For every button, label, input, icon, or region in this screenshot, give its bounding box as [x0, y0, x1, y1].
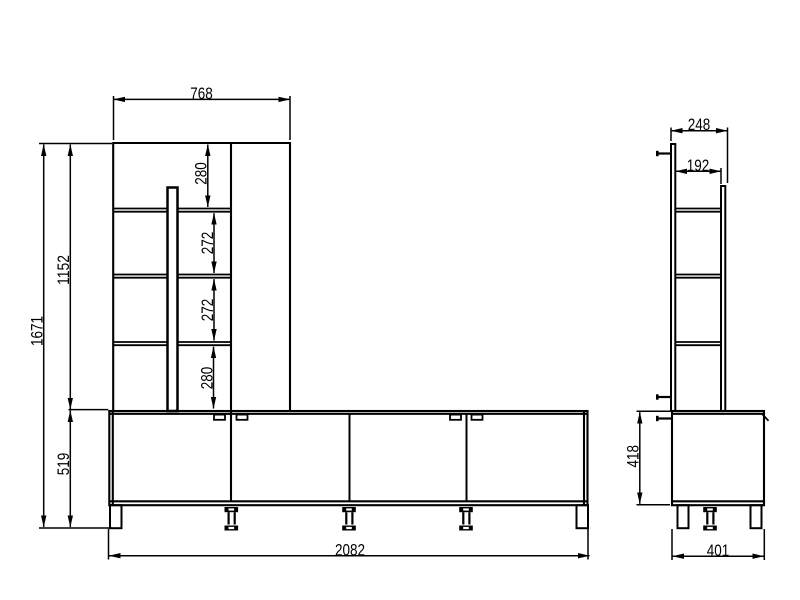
svg-text:418: 418	[625, 445, 643, 468]
svg-text:280: 280	[193, 162, 211, 185]
svg-text:768: 768	[190, 85, 213, 103]
svg-text:401: 401	[707, 542, 730, 560]
svg-text:2082: 2082	[335, 541, 365, 559]
svg-text:1671: 1671	[29, 316, 47, 346]
svg-text:272: 272	[199, 299, 217, 322]
svg-text:248: 248	[688, 116, 711, 134]
svg-text:272: 272	[199, 232, 217, 255]
svg-text:280: 280	[198, 367, 216, 390]
svg-text:1152: 1152	[55, 255, 73, 285]
svg-text:192: 192	[687, 157, 710, 175]
svg-text:519: 519	[55, 453, 73, 476]
